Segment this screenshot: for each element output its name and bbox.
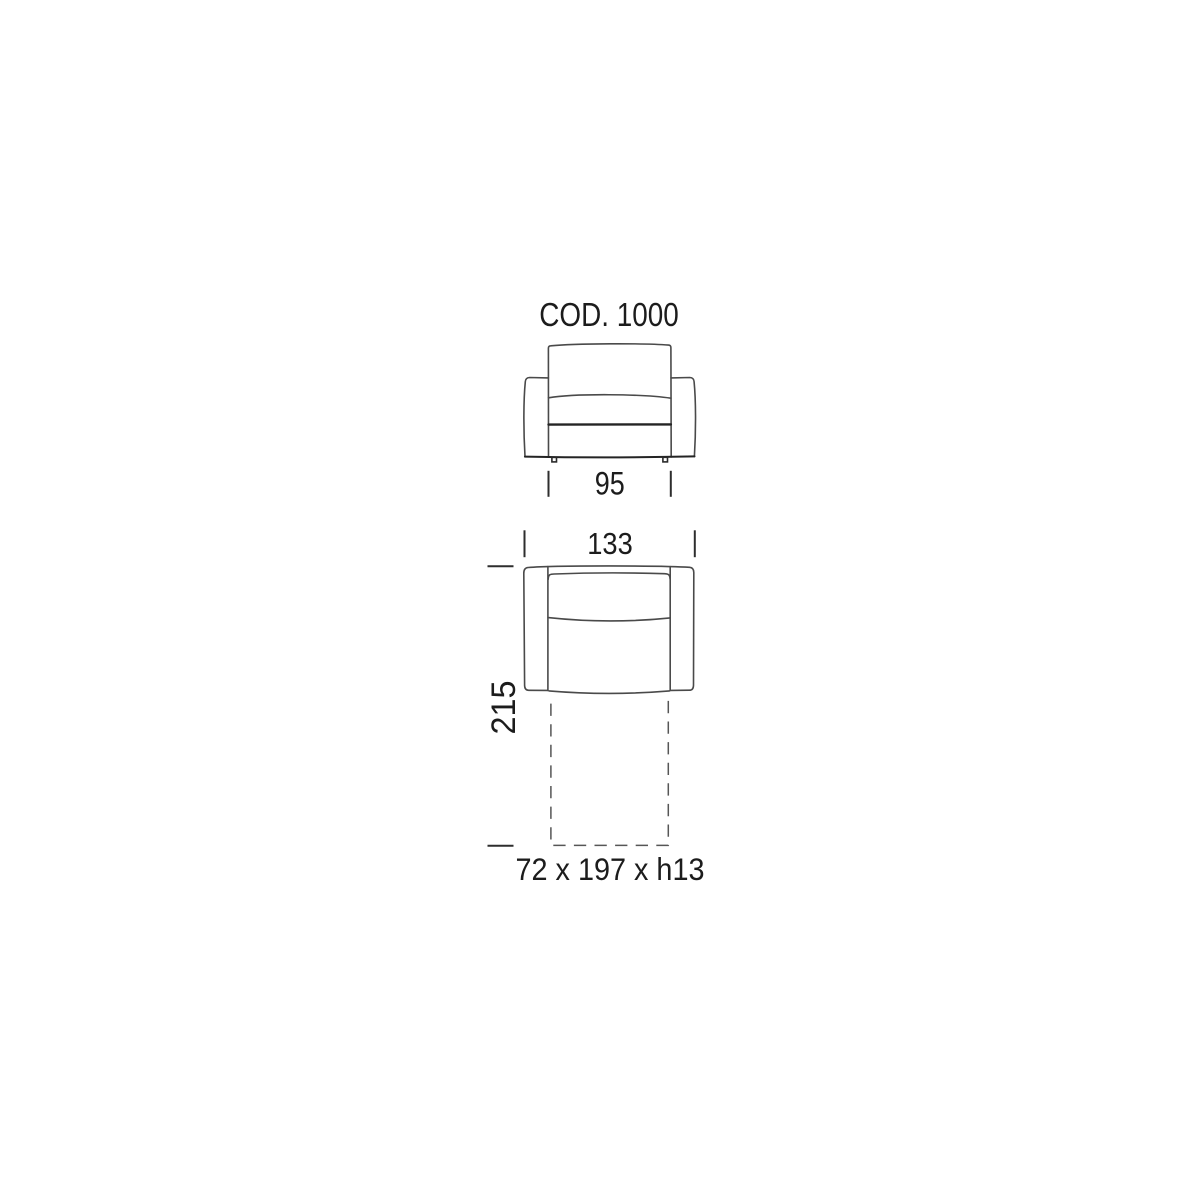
svg-text:COD. 1000: COD. 1000 bbox=[539, 296, 679, 333]
svg-text:95: 95 bbox=[595, 465, 625, 501]
svg-text:72 x 197 x h13: 72 x 197 x h13 bbox=[516, 851, 705, 887]
svg-text:215: 215 bbox=[485, 681, 523, 735]
svg-text:133: 133 bbox=[587, 526, 633, 561]
